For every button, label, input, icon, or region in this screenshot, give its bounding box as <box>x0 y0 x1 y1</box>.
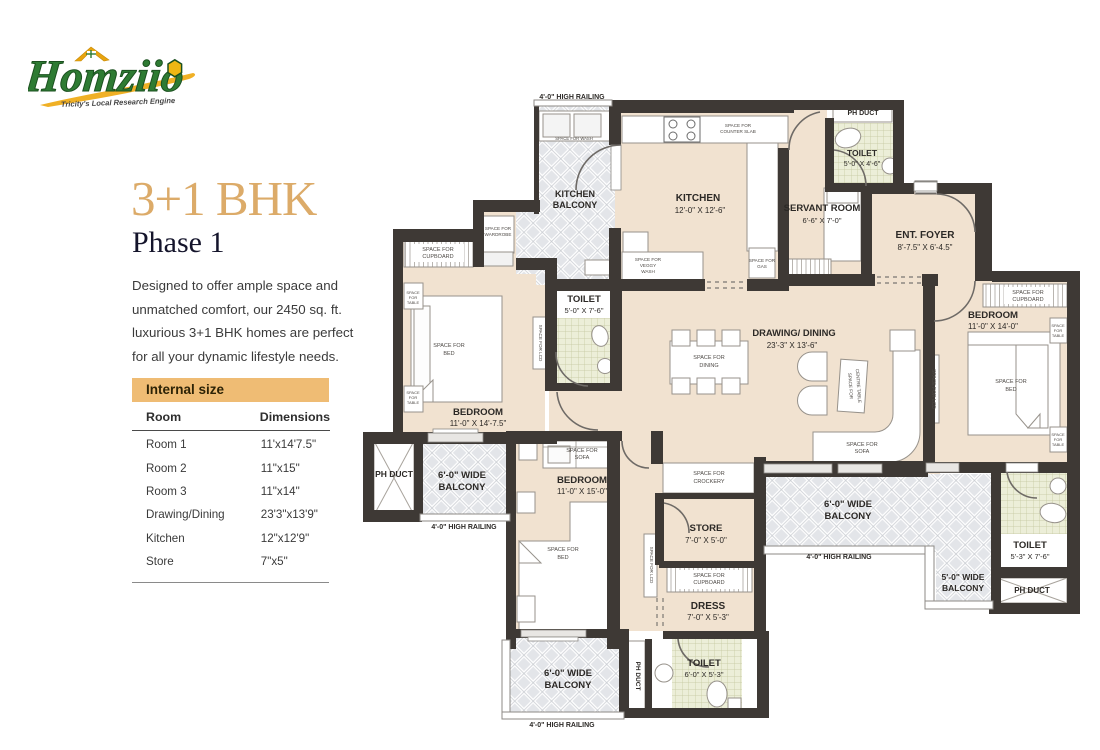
svg-text:PH DUCT: PH DUCT <box>375 469 414 479</box>
svg-text:SPACE FOR: SPACE FOR <box>749 258 776 263</box>
svg-text:KITCHEN: KITCHEN <box>555 189 595 199</box>
svg-text:5'-3" X 7'-6": 5'-3" X 7'-6" <box>1010 552 1049 561</box>
svg-text:BED: BED <box>557 555 568 561</box>
svg-text:11'-0" X 14'-7.5": 11'-0" X 14'-7.5" <box>450 419 507 428</box>
svg-text:BEDROOM: BEDROOM <box>453 407 503 418</box>
svg-text:DINING: DINING <box>699 363 718 369</box>
svg-text:TOILET: TOILET <box>567 294 601 305</box>
svg-text:STORE: STORE <box>690 523 723 534</box>
svg-text:6'-0" X 5'-3": 6'-0" X 5'-3" <box>684 670 723 679</box>
svg-text:ENT. FOYER: ENT. FOYER <box>896 230 956 241</box>
svg-text:6'-0" WIDE: 6'-0" WIDE <box>438 470 486 481</box>
svg-text:23'-3" X 13'-6": 23'-3" X 13'-6" <box>767 341 818 350</box>
svg-text:7'-0" X 5'-0": 7'-0" X 5'-0" <box>685 536 727 545</box>
svg-text:SPACE FOR: SPACE FOR <box>995 379 1026 385</box>
svg-text:5'-0" WIDE: 5'-0" WIDE <box>942 572 985 582</box>
svg-text:BALCONY: BALCONY <box>545 680 593 691</box>
svg-text:PH DUCT: PH DUCT <box>847 110 879 117</box>
svg-text:BALCONY: BALCONY <box>553 200 598 210</box>
svg-text:4'-0" HIGH RAILING: 4'-0" HIGH RAILING <box>806 554 872 561</box>
svg-text:SPACE FOR: SPACE FOR <box>693 355 724 361</box>
svg-text:BED: BED <box>443 351 454 357</box>
svg-text:SPACE FOR: SPACE FOR <box>485 226 512 231</box>
svg-text:8'-7.5" X 6'-4.5": 8'-7.5" X 6'-4.5" <box>898 243 953 252</box>
svg-text:11'-0" X 15'-0": 11'-0" X 15'-0" <box>557 487 607 496</box>
svg-text:SPACE FOR: SPACE FOR <box>725 123 752 128</box>
svg-text:SPACE FOR: SPACE FOR <box>422 247 453 253</box>
svg-text:6'-0" WIDE: 6'-0" WIDE <box>824 499 872 510</box>
svg-text:PH DUCT: PH DUCT <box>1014 586 1050 595</box>
svg-text:TOILET: TOILET <box>1013 540 1047 551</box>
svg-text:SOFA: SOFA <box>575 455 590 461</box>
svg-text:BEDROOM: BEDROOM <box>557 475 607 486</box>
svg-text:5'-0" X 7'-6": 5'-0" X 7'-6" <box>564 306 603 315</box>
svg-text:SPACE FOR: SPACE FOR <box>1012 290 1043 296</box>
svg-text:GAS: GAS <box>757 264 767 269</box>
svg-text:TABLE: TABLE <box>407 400 420 405</box>
svg-text:SPACE FOR: SPACE FOR <box>846 442 877 448</box>
svg-text:BALCONY: BALCONY <box>825 511 873 522</box>
svg-text:CUPBOARD: CUPBOARD <box>693 580 724 586</box>
svg-text:4'-0" HIGH RAILING: 4'-0" HIGH RAILING <box>539 94 605 101</box>
svg-text:BED: BED <box>1005 387 1016 393</box>
svg-text:TOILET: TOILET <box>687 658 721 669</box>
svg-text:DRESS: DRESS <box>691 601 726 612</box>
svg-text:6'-6" X 7'-0": 6'-6" X 7'-0" <box>802 216 841 225</box>
svg-text:DRAWING/ DINING: DRAWING/ DINING <box>752 327 835 338</box>
svg-text:COUNTER SLAB: COUNTER SLAB <box>720 129 756 134</box>
svg-text:SPACE FOR: SPACE FOR <box>693 471 724 477</box>
svg-text:SPACE FOR WASH: SPACE FOR WASH <box>555 136 592 141</box>
svg-text:WASH: WASH <box>641 269 655 274</box>
svg-text:BEDROOM: BEDROOM <box>968 310 1018 321</box>
svg-text:5'-0" X 4'-6": 5'-0" X 4'-6" <box>844 161 881 168</box>
svg-text:6'-0" WIDE: 6'-0" WIDE <box>544 668 592 679</box>
svg-text:TABLE: TABLE <box>1052 442 1065 447</box>
svg-text:TOILET: TOILET <box>847 148 878 158</box>
svg-text:SERVANT ROOM: SERVANT ROOM <box>784 203 861 214</box>
svg-text:12'-0" X 12'-6": 12'-0" X 12'-6" <box>675 206 726 215</box>
svg-text:TABLE: TABLE <box>407 300 420 305</box>
svg-text:SPACE FOR: SPACE FOR <box>566 448 597 454</box>
svg-text:CROCKERY: CROCKERY <box>693 479 724 485</box>
svg-text:4'-0" HIGH RAILING: 4'-0" HIGH RAILING <box>529 722 595 729</box>
svg-text:SPACE FOR LCD: SPACE FOR LCD <box>930 369 936 409</box>
svg-text:VEGGY: VEGGY <box>640 263 656 268</box>
svg-text:WARDROBE: WARDROBE <box>485 232 512 237</box>
svg-text:BALCONY: BALCONY <box>942 583 984 593</box>
svg-text:11'-0" X 14'-0": 11'-0" X 14'-0" <box>968 322 1018 331</box>
svg-text:7'-0" X 5'-3": 7'-0" X 5'-3" <box>687 613 729 622</box>
svg-text:4'-0" HIGH RAILING: 4'-0" HIGH RAILING <box>431 524 497 531</box>
svg-text:SPACE FOR: SPACE FOR <box>635 257 662 262</box>
svg-text:CUPBOARD: CUPBOARD <box>1012 297 1043 303</box>
svg-text:SPACE FOR: SPACE FOR <box>693 573 724 579</box>
svg-text:SOFA: SOFA <box>855 449 870 455</box>
svg-text:SPACE FOR: SPACE FOR <box>547 547 578 553</box>
svg-text:SPACE FOR LCD: SPACE FOR LCD <box>649 547 654 584</box>
svg-text:PH DUCT: PH DUCT <box>634 662 641 691</box>
svg-text:SPACE FOR: SPACE FOR <box>433 343 464 349</box>
svg-text:CUPBOARD: CUPBOARD <box>422 254 453 260</box>
svg-text:BALCONY: BALCONY <box>439 482 487 493</box>
svg-text:TABLE: TABLE <box>1052 333 1065 338</box>
svg-text:SPACE FOR LCD: SPACE FOR LCD <box>538 325 543 362</box>
svg-text:KITCHEN: KITCHEN <box>676 193 720 204</box>
